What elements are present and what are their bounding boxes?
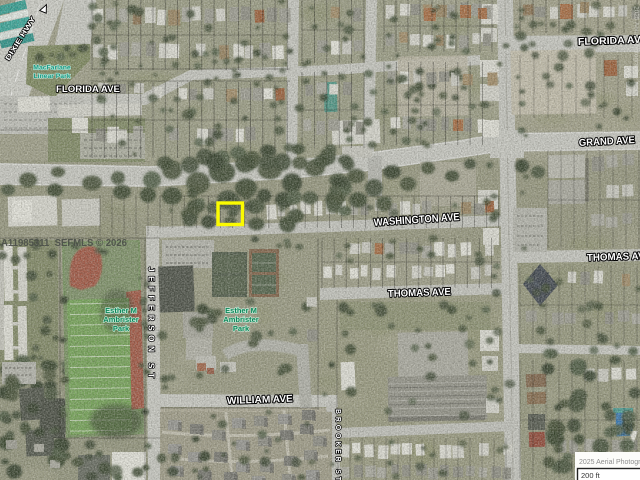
svg-text:THOMAS AVE: THOMAS AVE bbox=[587, 251, 640, 264]
svg-text:WILLIAM AVE: WILLIAM AVE bbox=[227, 394, 294, 407]
svg-text:Ambrister: Ambrister bbox=[223, 315, 259, 324]
svg-text:A11985311 SEFMLS © 2026: A11985311 SEFMLS © 2026 bbox=[1, 238, 127, 249]
svg-text:200 ft: 200 ft bbox=[581, 471, 601, 480]
svg-text:Ambrister: Ambrister bbox=[103, 315, 139, 324]
svg-text:2025 Aerial Photography: 2025 Aerial Photography bbox=[633, 6, 640, 78]
svg-text:THOMAS AVE: THOMAS AVE bbox=[388, 287, 452, 300]
svg-text:FLORIDA AVE: FLORIDA AVE bbox=[578, 35, 640, 48]
svg-text:Esther M: Esther M bbox=[225, 306, 257, 315]
svg-text:MacFarlane: MacFarlane bbox=[33, 65, 71, 72]
svg-text:Park: Park bbox=[113, 324, 130, 333]
svg-text:BROOKER ST: BROOKER ST bbox=[334, 409, 341, 480]
svg-text:Esther M: Esther M bbox=[105, 306, 137, 315]
svg-text:Park: Park bbox=[233, 324, 250, 333]
svg-text:2025 Aerial Photograph: 2025 Aerial Photograph bbox=[579, 459, 640, 466]
svg-text:Linear Park: Linear Park bbox=[33, 73, 70, 80]
svg-text:FLORIDA AVE: FLORIDA AVE bbox=[56, 84, 120, 95]
